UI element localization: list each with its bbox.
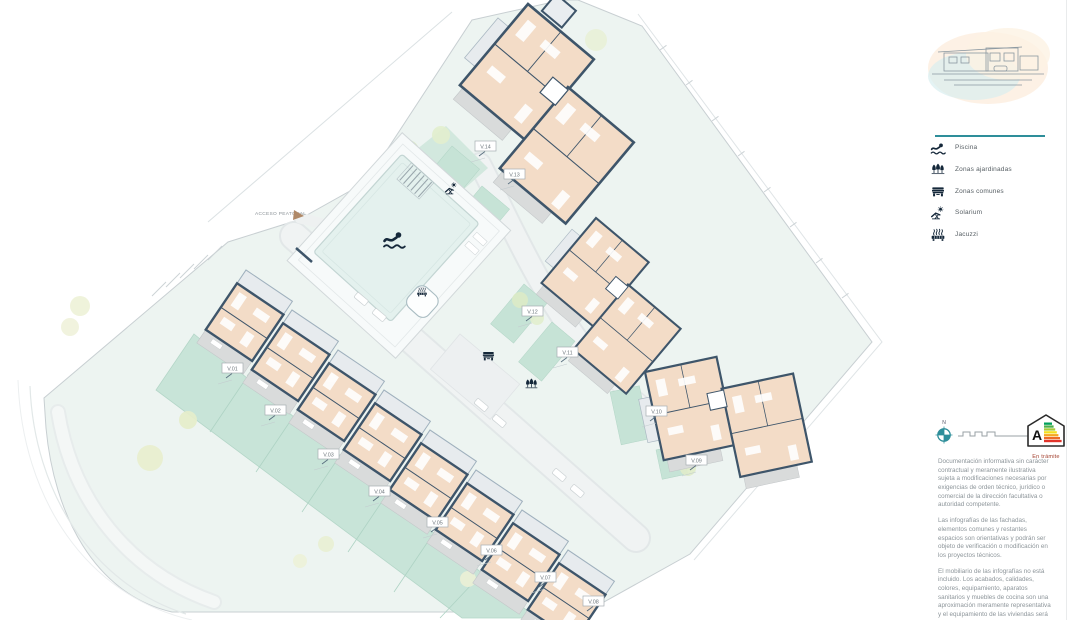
disclaimer-paragraph: El mobiliario de las infografías no está… xyxy=(938,568,1052,620)
legend-item-piscina: Piscina xyxy=(930,137,1062,159)
svg-text:V.11: V.11 xyxy=(562,350,572,356)
energy-certificate: A En trámite xyxy=(1024,414,1068,460)
svg-text:V.07: V.07 xyxy=(540,575,551,581)
svg-text:V.12: V.12 xyxy=(527,309,538,315)
legend-item-solarium: Solarium xyxy=(930,202,1062,224)
swimmer-icon xyxy=(930,140,946,156)
north-and-scale: N xyxy=(934,419,1030,449)
svg-text:V.05: V.05 xyxy=(432,520,443,526)
sun-lounger-icon xyxy=(930,205,946,221)
disclaimer-paragraph: Documentación informativa sin carácter c… xyxy=(938,458,1052,510)
energy-rating-icon: A xyxy=(1026,414,1066,448)
legend-label: Solarium xyxy=(955,209,982,216)
bench-icon xyxy=(930,183,946,199)
legend-label: Jacuzzi xyxy=(955,231,978,238)
svg-text:V.10: V.10 xyxy=(651,409,662,415)
scale-bar xyxy=(958,432,1028,436)
svg-text:V.01: V.01 xyxy=(227,366,238,372)
legend-item-zonas-comunes: Zonas comunes xyxy=(930,180,1062,202)
svg-text:V.08: V.08 xyxy=(588,599,599,605)
svg-text:V.09: V.09 xyxy=(691,458,702,464)
jacuzzi-icon xyxy=(930,227,946,243)
north-label: N xyxy=(942,420,946,426)
svg-text:V.13: V.13 xyxy=(509,172,520,178)
development-logo-sketch xyxy=(924,14,1054,116)
panel-edge-line xyxy=(1066,0,1067,620)
legal-disclaimer: Documentación informativa sin carácter c… xyxy=(938,458,1052,620)
map-legend: Piscina Zonas ajardinadas Zonas comunes … xyxy=(930,137,1062,245)
site-plan-page: ACCESO PEATONAL V.01 V.02 V.03 xyxy=(0,0,1070,620)
trees-icon xyxy=(930,162,946,178)
legend-item-zonas-ajardinadas: Zonas ajardinadas xyxy=(930,159,1062,181)
legend-label: Zonas comunes xyxy=(955,188,1004,195)
svg-text:V.02: V.02 xyxy=(270,408,281,414)
svg-text:V.06: V.06 xyxy=(486,548,497,554)
disclaimer-paragraph: Las infografías de las fachadas, element… xyxy=(938,517,1052,560)
svg-text:V.04: V.04 xyxy=(374,489,385,495)
legend-label: Piscina xyxy=(955,144,977,151)
legend-item-jacuzzi: Jacuzzi xyxy=(930,224,1062,246)
legend-label: Zonas ajardinadas xyxy=(955,166,1012,173)
info-panel: Piscina Zonas ajardinadas Zonas comunes … xyxy=(920,0,1070,620)
site-plan-drawing: ACCESO PEATONAL V.01 V.02 V.03 xyxy=(0,0,920,620)
svg-text:V.14: V.14 xyxy=(480,144,491,150)
svg-text:V.03: V.03 xyxy=(323,452,334,458)
energy-rating-letter: A xyxy=(1032,427,1042,443)
